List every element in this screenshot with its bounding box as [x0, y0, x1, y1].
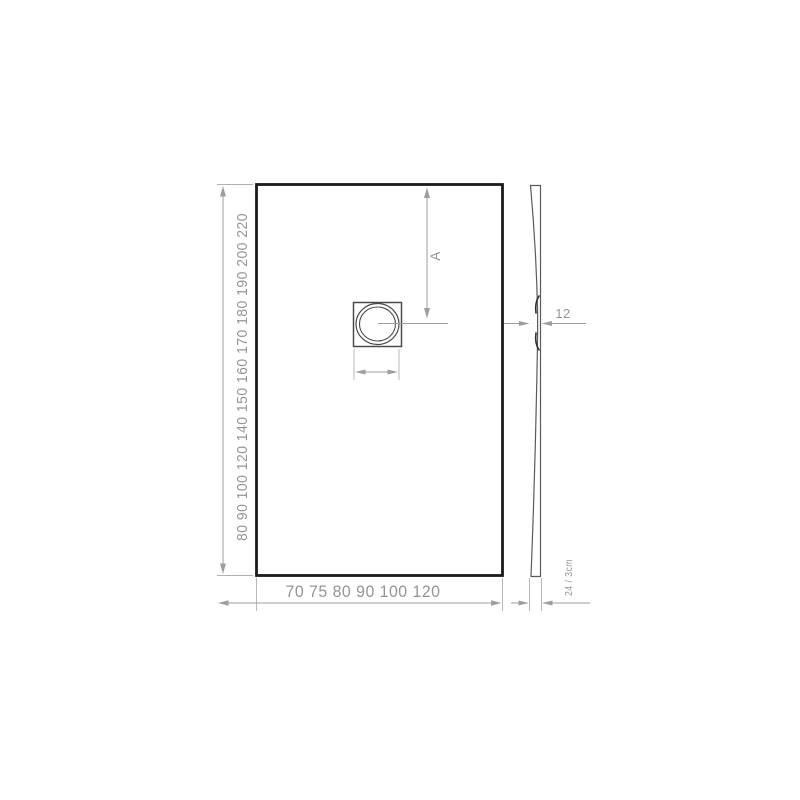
- thickness-dimension-group: 24 / 3cm: [511, 559, 590, 611]
- shower-tray-drawing-canvas: A 80 90 100 120 140 150 160 170 180 190 …: [0, 0, 800, 800]
- width-ruler-group: 70 75 80 90 100 120: [218, 578, 503, 611]
- waist-dimension-group: 12: [504, 306, 586, 326]
- thickness-dimension-label: 24 / 3cm: [563, 559, 575, 596]
- technical-drawing-page: A 80 90 100 120 140 150 160 170 180 190 …: [0, 0, 800, 800]
- width-scale-labels: 70 75 80 90 100 120: [286, 582, 441, 601]
- height-ruler-group: 80 90 100 120 140 150 160 170 180 190 20…: [217, 185, 253, 576]
- width-arrow-left: [218, 600, 229, 606]
- front-view-group: A 80 90 100 120 140 150 160 170 180 190 …: [217, 185, 503, 612]
- waist-dimension-label: 12: [555, 306, 570, 321]
- thickness-arrow-left: [542, 601, 553, 606]
- width-arrow-right: [491, 600, 502, 606]
- tray-outline-rect: [257, 185, 503, 576]
- height-arrow-down: [220, 564, 226, 575]
- dimension-a-label: A: [428, 251, 443, 261]
- thickness-arrow-right: [519, 601, 530, 606]
- height-arrow-up: [220, 186, 226, 197]
- side-view-group: 12 24 / 3cm: [504, 186, 590, 612]
- height-scale-labels: 80 90 100 120 140 150 160 170 180 190 20…: [234, 213, 251, 541]
- waist-arrow-right: [519, 321, 530, 326]
- waist-arrow-left: [542, 321, 553, 326]
- side-profile-shape: [531, 186, 541, 577]
